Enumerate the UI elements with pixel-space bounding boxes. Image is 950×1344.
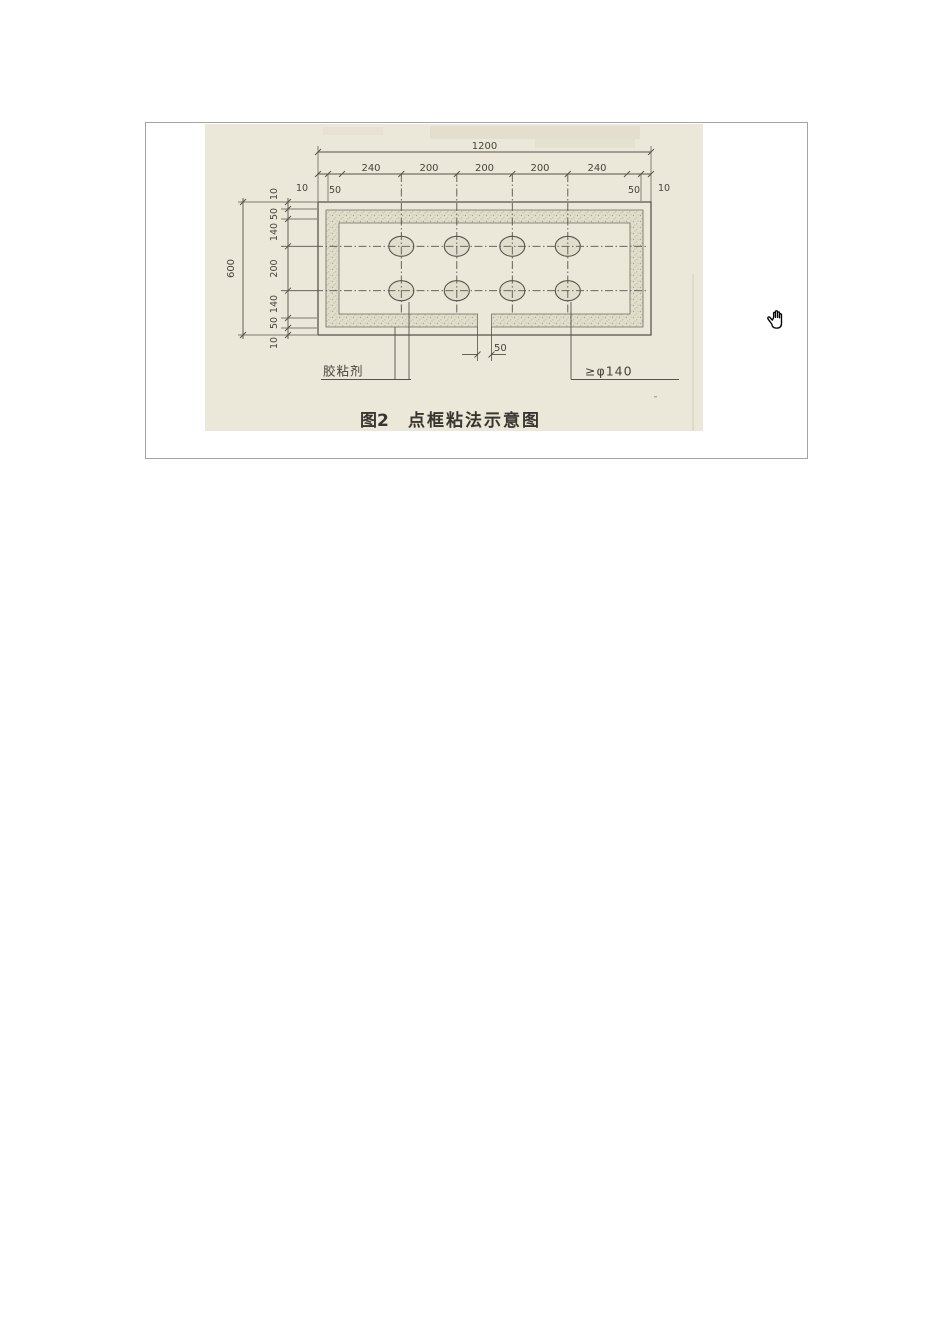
- dim-total-height-label: 600: [226, 259, 237, 278]
- top-dimension-lines: [315, 146, 654, 202]
- scanned-diagram-image[interactable]: 1200 240 200 200 200 240 10 50 50 10 600…: [205, 124, 703, 431]
- panel-outline: [318, 202, 651, 335]
- figure-caption-title: 点框粘法示意图: [408, 410, 541, 431]
- dim-top-right-inset-label: 50: [628, 185, 640, 196]
- dim-bottom-gap-label: 50: [494, 343, 507, 354]
- diagram-svg: 1200 240 200 200 200 240 10 50 50 10 600…: [205, 124, 703, 431]
- dim-top-segment-label: 200: [419, 163, 438, 174]
- dim-left-segment-label: 140: [269, 295, 280, 313]
- dim-top-left-edge-label: 10: [296, 183, 308, 194]
- figure-frame: 1200 240 200 200 200 240 10 50 50 10 600…: [145, 122, 808, 459]
- dim-top-segment-label: 200: [475, 163, 494, 174]
- dim-left-segment-label: 50: [269, 317, 280, 329]
- dim-top-segment-label: 240: [361, 163, 380, 174]
- adhesive-frame-band: [326, 210, 643, 327]
- dim-left-segment-label: 200: [269, 259, 280, 277]
- dim-top-left-inset-label: 50: [329, 185, 341, 196]
- dim-left-segment-label: 140: [269, 223, 280, 241]
- diameter-label: ≥φ140: [585, 364, 633, 379]
- dim-top-right-edge-label: 10: [658, 183, 670, 194]
- figure-caption-number: 图2: [360, 411, 389, 431]
- dim-top-segment-label: 200: [530, 163, 549, 174]
- dim-left-segment-label: 10: [269, 188, 280, 200]
- dim-top-segment-label: 240: [587, 163, 606, 174]
- dim-left-segment-label: 10: [269, 337, 280, 349]
- dim-left-segment-label: 50: [269, 208, 280, 220]
- dim-total-width-label: 1200: [472, 141, 497, 152]
- adhesive-label: 胶粘剂: [323, 364, 364, 379]
